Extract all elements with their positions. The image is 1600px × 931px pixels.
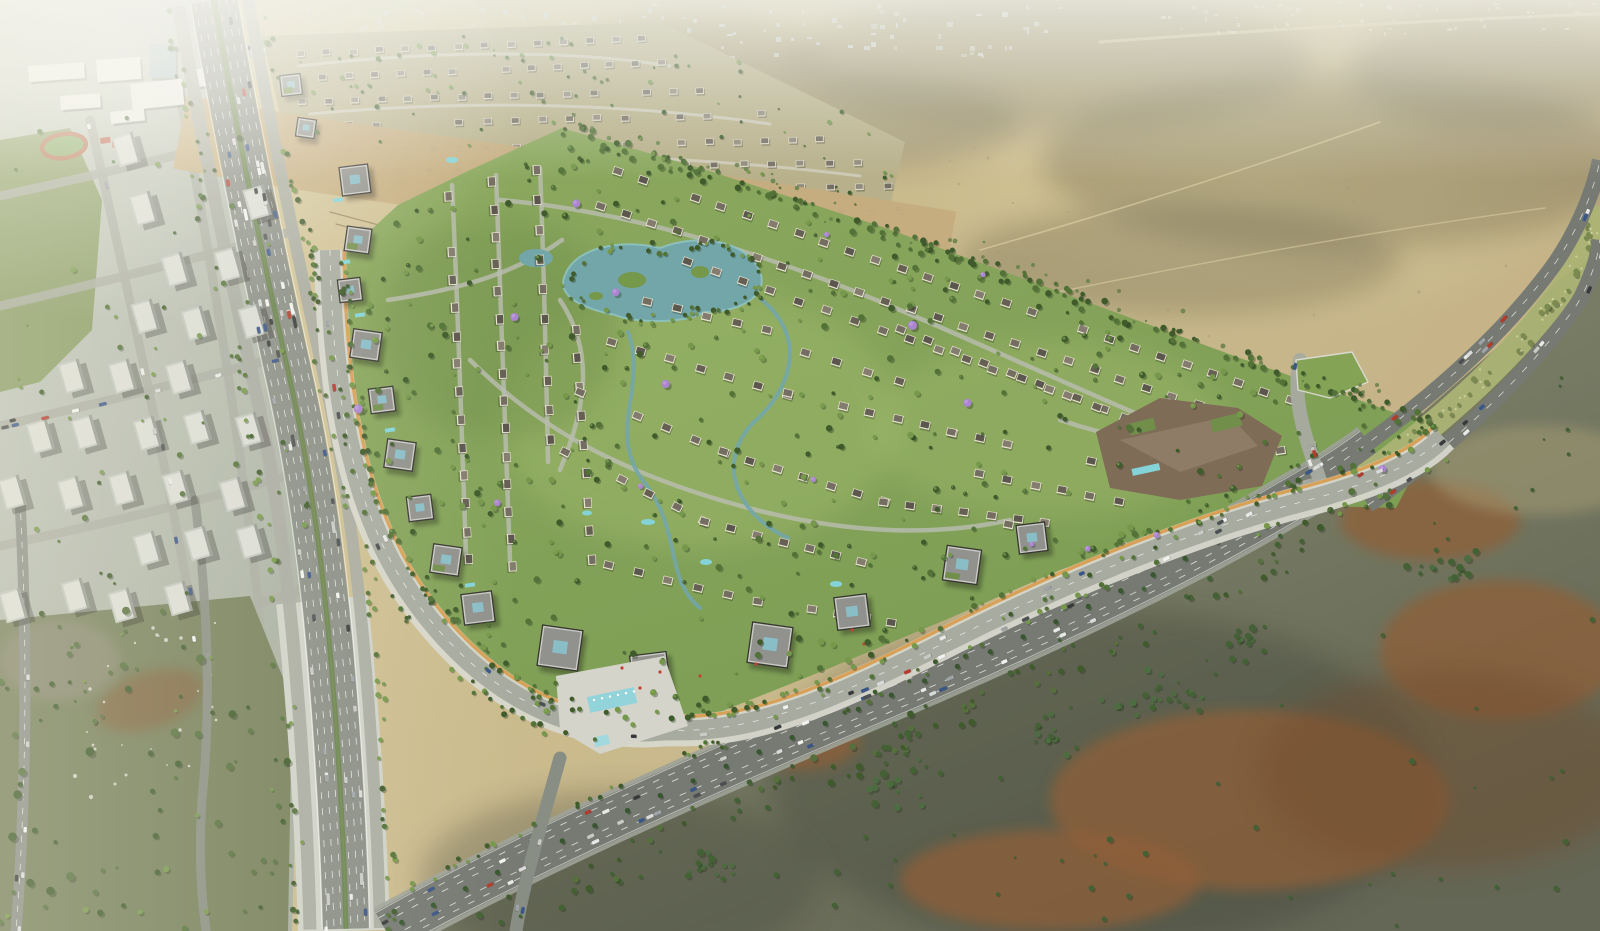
aerial-render-stage: Aerial render of The Estates desert mast… bbox=[0, 0, 1600, 931]
aerial-scene: Aerial render of The Estates desert mast… bbox=[0, 0, 1600, 931]
atmosphere-haze bbox=[0, 0, 1600, 931]
